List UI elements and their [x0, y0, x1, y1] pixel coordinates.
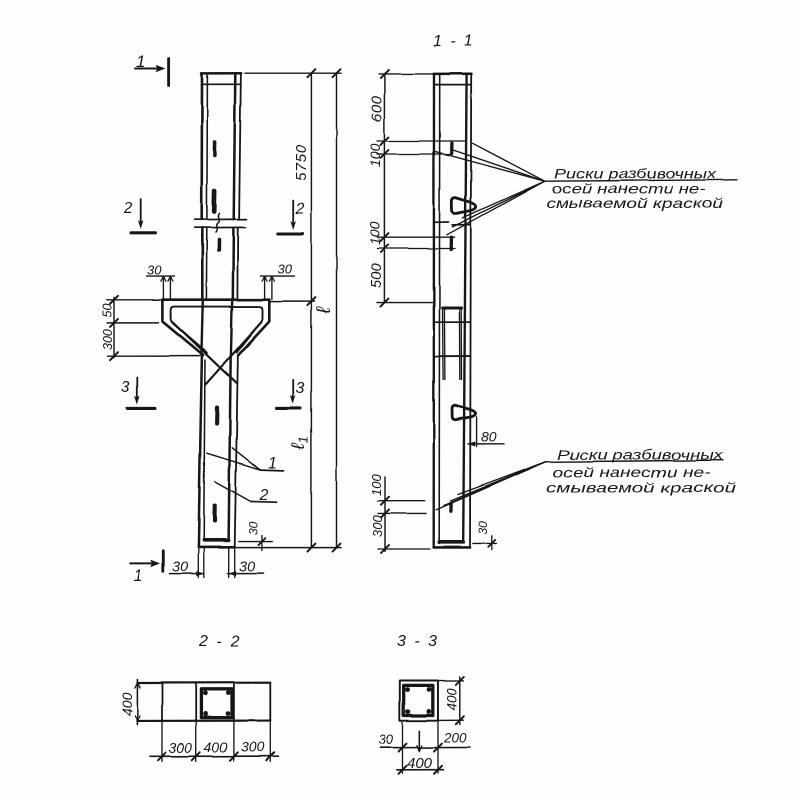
svg-text:3: 3: [296, 381, 305, 398]
svg-text:2: 2: [259, 487, 269, 504]
svg-text:ℓ1: ℓ1: [289, 436, 312, 450]
svg-text:600: 600: [369, 95, 386, 122]
svg-text:500: 500: [369, 263, 385, 287]
svg-text:ℓ: ℓ: [313, 306, 335, 315]
svg-text:400: 400: [204, 739, 228, 755]
svg-text:300: 300: [241, 739, 265, 755]
svg-text:5750: 5750: [293, 144, 310, 181]
svg-text:200: 200: [443, 731, 467, 746]
svg-text:30: 30: [278, 262, 293, 277]
svg-text:смываемой краской: смываемой краской: [546, 195, 723, 211]
svg-text:Риски разбивочных: Риски разбивочных: [554, 166, 717, 182]
svg-text:100: 100: [367, 221, 383, 245]
svg-text:30: 30: [247, 521, 261, 535]
svg-text:300: 300: [169, 740, 193, 756]
svg-text:1: 1: [268, 455, 277, 472]
svg-text:2: 2: [295, 201, 305, 218]
svg-text:100: 100: [367, 143, 383, 167]
svg-text:осей нанести не-: осей нанести не-: [553, 464, 711, 480]
svg-text:3 - 3: 3 - 3: [397, 633, 439, 650]
svg-text:1: 1: [134, 566, 143, 585]
svg-text:2 - 2: 2 - 2: [198, 633, 241, 650]
svg-text:80: 80: [481, 429, 497, 445]
svg-text:Риски разбивочных: Риски разбивочных: [557, 447, 724, 463]
svg-text:400: 400: [407, 755, 433, 772]
svg-text:30: 30: [172, 560, 188, 576]
svg-text:400: 400: [119, 692, 135, 716]
svg-text:300: 300: [101, 329, 115, 350]
svg-text:30: 30: [147, 263, 162, 278]
svg-text:3: 3: [121, 379, 130, 396]
svg-text:30: 30: [239, 560, 255, 576]
svg-text:400: 400: [445, 687, 460, 710]
svg-text:30: 30: [378, 732, 394, 747]
svg-text:100: 100: [369, 473, 384, 495]
svg-text:50: 50: [101, 304, 115, 318]
svg-text:смываемой краской: смываемой краской: [546, 480, 736, 496]
svg-text:2: 2: [123, 200, 133, 217]
svg-text:30: 30: [476, 521, 490, 535]
svg-text:1 - 1: 1 - 1: [433, 33, 475, 50]
svg-text:300: 300: [370, 515, 385, 537]
